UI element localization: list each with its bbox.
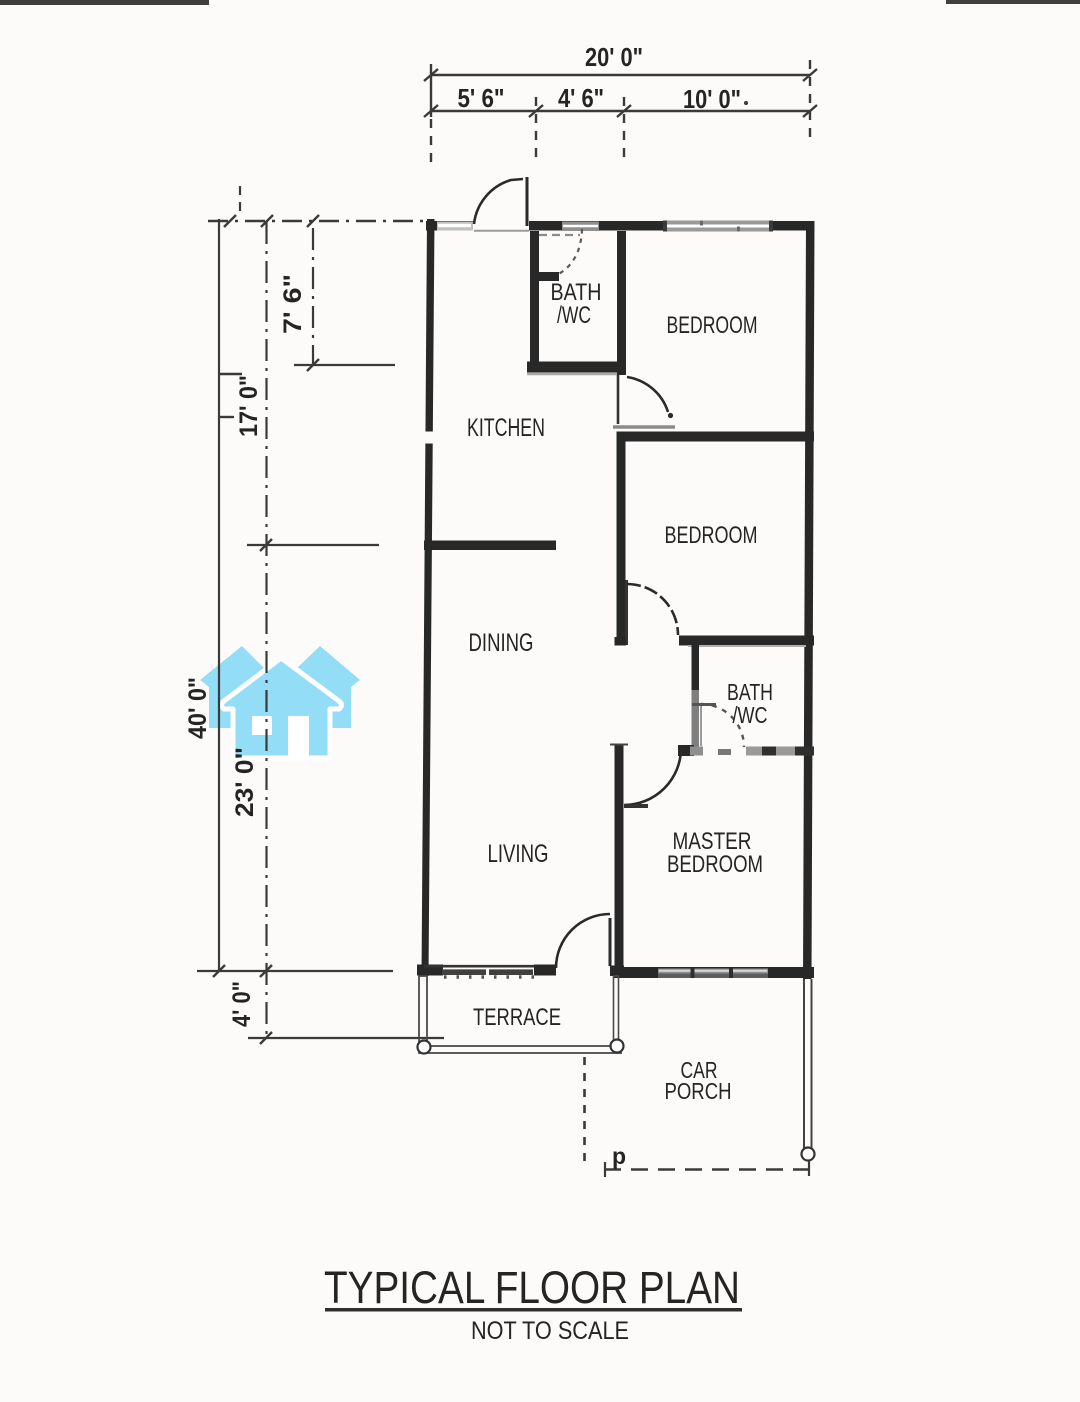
svg-text:p: p [612,1143,626,1169]
svg-text:NOT TO SCALE: NOT TO SCALE [471,1317,629,1345]
svg-text:PORCH: PORCH [665,1078,732,1104]
svg-text:DINING: DINING [469,629,534,657]
svg-text:BEDROOM: BEDROOM [665,522,758,549]
svg-text:20' 0": 20' 0" [585,42,643,72]
svg-text:BEDROOM: BEDROOM [667,851,763,878]
svg-text:TERRACE: TERRACE [473,1004,561,1031]
svg-text:17' 0": 17' 0" [235,375,263,437]
svg-text:LIVING: LIVING [488,840,549,868]
svg-text:TYPICAL FLOOR PLAN: TYPICAL FLOOR PLAN [324,1262,740,1313]
svg-text:7' 6": 7' 6" [279,274,307,334]
svg-text:/WC: /WC [557,302,591,329]
svg-text:5' 6": 5' 6" [458,83,505,113]
svg-text:4' 0": 4' 0" [228,981,256,1027]
svg-text:BEDROOM: BEDROOM [667,312,758,339]
svg-text:23' 0": 23' 0" [231,747,259,817]
svg-text:KITCHEN: KITCHEN [467,414,545,442]
svg-text:40' 0": 40' 0" [184,677,212,739]
svg-text:10' 0": 10' 0" [683,84,741,114]
svg-text:4' 6": 4' 6" [558,83,604,113]
svg-text:/WC: /WC [733,702,768,728]
